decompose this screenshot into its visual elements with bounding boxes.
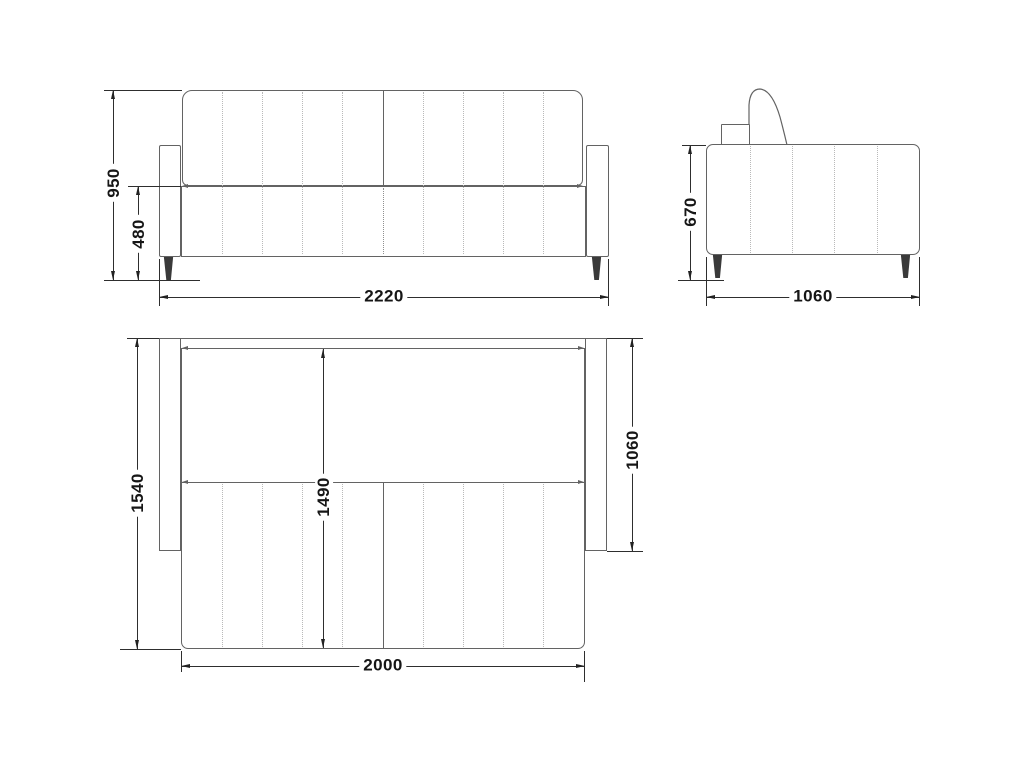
arrow-up-icon [321, 349, 325, 358]
extension-line [919, 257, 920, 306]
dim-front-height-line [113, 90, 114, 280]
seam-wedge [182, 184, 188, 188]
dim-label-side-height: 670 [682, 193, 700, 231]
stitch-line [302, 92, 303, 254]
front-armrest-right [586, 145, 609, 257]
technical-drawing-sofa: 950 480 2220 [0, 0, 1024, 768]
front-back-cushions [182, 90, 583, 186]
arrow-left-icon [706, 295, 715, 299]
side-pillow [721, 124, 750, 145]
dim-label-top-depth-open: 1540 [129, 469, 147, 516]
dim-label-front-height: 950 [105, 164, 123, 202]
dim-top-depth-line [632, 338, 633, 551]
stitch-line [503, 484, 504, 647]
arrow-down-icon [630, 542, 634, 551]
stitch-line-center [383, 188, 384, 254]
stitch-line [222, 92, 223, 254]
arrow-down-icon [111, 271, 115, 280]
extension-line [607, 551, 643, 552]
top-armrest-right [585, 338, 607, 551]
dim-top-bed-length-line [323, 349, 324, 648]
arrow-up-icon [111, 90, 115, 99]
seam-wedge [578, 480, 584, 484]
extension-line [128, 186, 181, 187]
dim-side-height-line [690, 145, 691, 280]
dim-front-width-line [159, 297, 609, 298]
extension-line [706, 257, 707, 306]
arrow-left-icon [159, 295, 168, 299]
extension-line [608, 259, 609, 306]
dim-label-top-bed-width: 2000 [359, 657, 406, 675]
extension-line-floor [104, 280, 200, 281]
dim-label-side-depth: 1060 [789, 288, 836, 306]
extension-line [159, 259, 160, 306]
arrow-right-icon [576, 664, 585, 668]
seam-wedge [577, 184, 583, 188]
side-leg-back [900, 255, 911, 278]
stitch-line [834, 146, 835, 253]
stitch-line [543, 92, 544, 254]
stitch-line [503, 92, 504, 254]
extension-line [120, 649, 181, 650]
stitch-line [222, 484, 223, 647]
stitch-line [463, 484, 464, 647]
stitch-line [463, 92, 464, 254]
extension-line [682, 145, 706, 146]
arrow-down-icon [321, 639, 325, 648]
extension-line [104, 90, 182, 91]
top-view: 1540 1490 1060 2000 [0, 0, 1024, 768]
dim-front-seat-height-line [138, 186, 139, 280]
seam-wedge [578, 346, 584, 350]
arrow-up-icon [136, 186, 140, 195]
extension-line-floor [678, 280, 724, 281]
stitch-line [877, 146, 878, 253]
dim-label-top-bed-length: 1490 [315, 473, 333, 520]
stitch-line [750, 146, 751, 253]
top-bed-surface [181, 348, 585, 649]
arrow-up-icon [630, 338, 634, 347]
extension-line [127, 338, 159, 339]
stitch-line [262, 484, 263, 647]
extension-line [607, 338, 643, 339]
arrow-up-icon [688, 145, 692, 154]
side-view: 670 1060 [0, 0, 1024, 768]
stitch-line [423, 484, 424, 647]
front-armrest-left [159, 145, 181, 257]
extension-line [584, 651, 585, 682]
dim-label-front-seat-height: 480 [130, 215, 148, 253]
arrow-right-icon [911, 295, 920, 299]
top-armrest-left [159, 338, 181, 551]
arrow-down-icon [136, 271, 140, 280]
stitch-line [302, 484, 303, 647]
front-leg-left [163, 257, 174, 280]
stitch-line [543, 484, 544, 647]
stitch-line [423, 92, 424, 254]
stitch-line [262, 92, 263, 254]
stitch-line [792, 146, 793, 253]
arrow-down-icon [135, 640, 139, 649]
dim-label-top-depth: 1060 [624, 426, 642, 473]
arrow-right-icon [600, 295, 609, 299]
front-leg-right [591, 257, 602, 280]
arrow-up-icon [135, 338, 139, 347]
dim-top-bed-width-line [181, 666, 585, 667]
stitch-line [342, 92, 343, 254]
top-center-seam-line [383, 483, 384, 648]
extension-line [181, 651, 182, 672]
front-view: 950 480 2220 [0, 0, 1024, 768]
arrow-left-icon [181, 664, 190, 668]
side-back-cushion [745, 87, 791, 147]
seam-wedge [182, 480, 188, 484]
dim-side-depth-line [706, 297, 920, 298]
top-fold-line [182, 482, 584, 483]
top-frame-back-line [159, 338, 607, 339]
stitch-line [342, 484, 343, 647]
side-leg-front [712, 255, 723, 278]
front-cushion-divider-line [383, 91, 384, 185]
arrow-down-icon [688, 271, 692, 280]
seam-wedge [182, 346, 188, 350]
dim-top-depth-open-line [137, 338, 138, 649]
side-body [706, 144, 920, 255]
dim-label-front-width: 2220 [360, 288, 407, 306]
front-seat-base [181, 186, 586, 257]
